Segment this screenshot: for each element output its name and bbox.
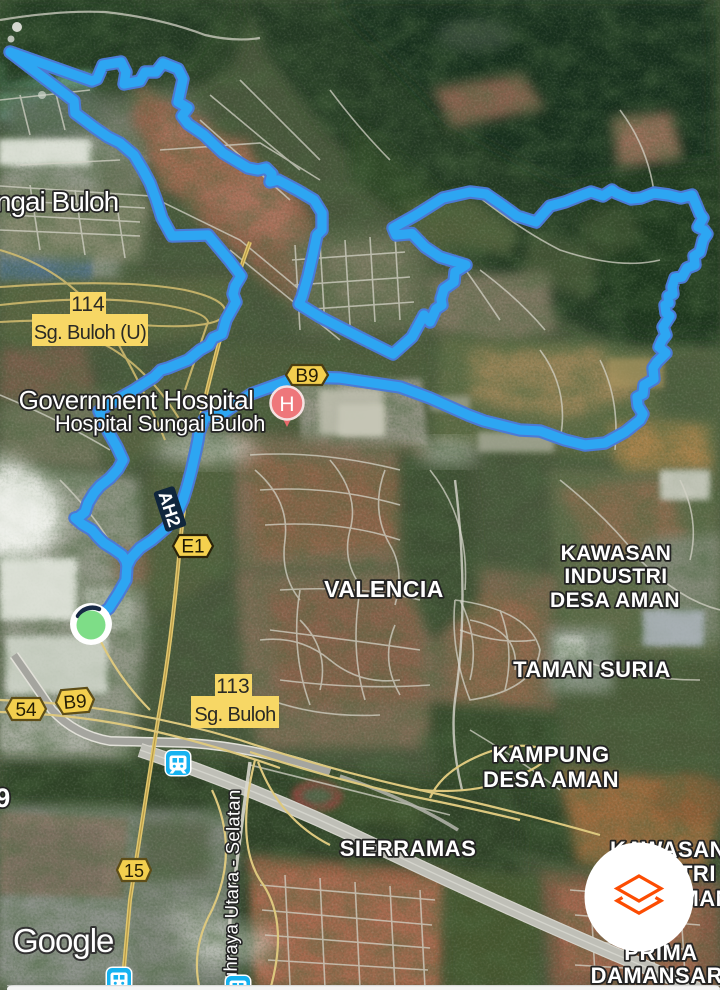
svg-text:Sg. Buloh (U): Sg. Buloh (U)	[34, 322, 146, 344]
svg-text:Lebuhraya Utara - Selatan: Lebuhraya Utara - Selatan	[219, 789, 244, 990]
svg-text:113: 113	[216, 675, 249, 698]
svg-text:DESA AMAN: DESA AMAN	[550, 589, 680, 612]
svg-text:B9: B9	[63, 691, 88, 714]
svg-text:9: 9	[0, 783, 11, 813]
svg-text:KAMPUNG: KAMPUNG	[492, 742, 609, 767]
svg-text:15: 15	[124, 861, 144, 881]
svg-text:DESA AMAN: DESA AMAN	[483, 767, 619, 792]
svg-text:KAWASAN: KAWASAN	[561, 542, 672, 565]
svg-text:54: 54	[15, 700, 37, 721]
svg-text:114: 114	[71, 293, 105, 316]
svg-text:H: H	[279, 393, 294, 416]
svg-text:SIERRAMAS: SIERRAMAS	[340, 836, 477, 861]
svg-text:DAMANSARA: DAMANSARA	[591, 963, 720, 988]
svg-text:Hospital Sungai Buloh: Hospital Sungai Buloh	[55, 411, 265, 436]
svg-text:Sg. Buloh: Sg. Buloh	[194, 704, 275, 726]
svg-text:TAMAN SURIA: TAMAN SURIA	[513, 657, 671, 682]
svg-text:VALENCIA: VALENCIA	[324, 576, 444, 602]
svg-text:B9: B9	[295, 366, 318, 387]
svg-text:INDUSTRI: INDUSTRI	[564, 565, 667, 588]
svg-text:ngai Buloh: ngai Buloh	[0, 186, 118, 217]
svg-text:E1: E1	[181, 537, 204, 558]
svg-text:Google: Google	[13, 922, 113, 959]
